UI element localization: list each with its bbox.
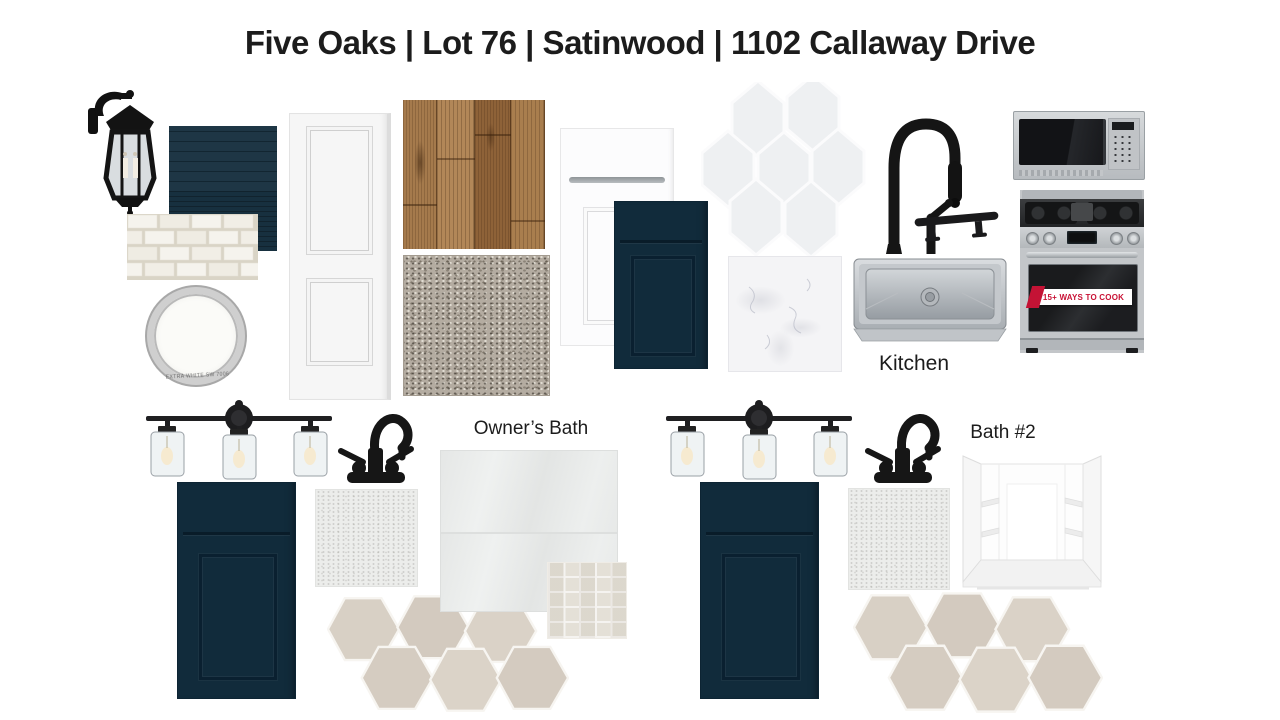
page-title: Five Oaks | Lot 76 | Satinwood | 1102 Ca…: [0, 24, 1280, 62]
range-promo-banner: 15+ WAYS TO COOK: [1035, 289, 1132, 305]
microwave-control-panel: [1108, 118, 1140, 170]
range-knob: [1127, 232, 1140, 245]
navy-cabinet-kitchen-image: [614, 201, 708, 369]
kitchen-label: Kitchen: [853, 352, 975, 376]
oven-window: 15+ WAYS TO COOK: [1028, 264, 1138, 332]
shower-floor-tile-bath2-swatch: [848, 488, 950, 590]
vanity-light-owners-image: [138, 392, 340, 480]
range-display: [1067, 231, 1097, 244]
wood-plank: [437, 100, 475, 249]
quartz-countertop-swatch: [728, 256, 842, 372]
bath-faucet-bath2-image: [856, 402, 948, 490]
bath-faucet-owners-image: [331, 402, 419, 490]
range-backguard: [1022, 190, 1142, 199]
wood-floor-swatch: [403, 100, 545, 249]
door-upper-panel: [306, 126, 373, 255]
wood-plank: [511, 100, 545, 249]
door-lower-panel: [306, 278, 373, 366]
kitchen-sink-image: [852, 257, 1008, 342]
burner-grate: [1087, 202, 1139, 224]
cabinet-door-panel: [631, 256, 695, 356]
center-griddle: [1071, 203, 1093, 221]
burner-grate: [1025, 202, 1077, 224]
owners-bath-label: Owner’s Bath: [446, 418, 616, 440]
hex-tile-bath2-swatch: [853, 592, 1103, 714]
microwave-image: [1013, 111, 1145, 180]
microwave-door: [1019, 119, 1106, 165]
drawer-divider: [706, 532, 813, 535]
carpet-swatch: [403, 255, 550, 396]
tub-shower-surround-image: [957, 450, 1107, 590]
microwave-display: [1112, 122, 1134, 130]
cabinet-handle-slot: [569, 177, 665, 183]
wood-plank: [475, 100, 511, 249]
range-foot: [1126, 348, 1138, 353]
oven-handle: [1026, 252, 1138, 258]
navy-vanity-bath2-image: [700, 482, 819, 699]
outdoor-lantern-image: [86, 82, 168, 216]
microwave-keypad: [1112, 134, 1134, 166]
drawer-divider: [183, 532, 290, 535]
vanity-light-bath2-image: [658, 392, 860, 480]
range-knob: [1043, 232, 1056, 245]
range-foot: [1026, 348, 1038, 353]
wood-plank: [403, 100, 437, 249]
range-control-panel: [1020, 227, 1144, 248]
picket-tile-swatch: [701, 82, 866, 258]
range-cooktop: [1020, 199, 1144, 227]
hex-tile-owners-swatch: [327, 594, 569, 714]
navy-vanity-owners-image: [177, 482, 296, 699]
cabinet-pull-image: [911, 201, 1002, 249]
range-knob: [1110, 232, 1123, 245]
microwave-vent: [1019, 170, 1103, 176]
bath2-label: Bath #2: [948, 422, 1058, 444]
interior-door-image: [289, 113, 391, 400]
range-knob: [1026, 232, 1039, 245]
shower-floor-tile-owners-swatch: [315, 489, 418, 587]
cabinet-door-panel: [199, 554, 277, 680]
wall-tile-swatch-1: [440, 450, 618, 533]
siding-grain-texture: [169, 126, 277, 191]
design-board-slide: Five Oaks | Lot 76 | Satinwood | 1102 Ca…: [0, 0, 1280, 720]
mosaic-tile-swatch: [547, 562, 627, 639]
gas-range-image: 15+ WAYS TO COOK: [1020, 190, 1144, 353]
brick-swatch: [127, 214, 258, 280]
cabinet-door-panel: [722, 554, 800, 680]
oven-door: 15+ WAYS TO COOK: [1020, 248, 1144, 336]
drawer-divider: [620, 240, 702, 243]
banner-text: 15+ WAYS TO COOK: [1043, 293, 1124, 302]
